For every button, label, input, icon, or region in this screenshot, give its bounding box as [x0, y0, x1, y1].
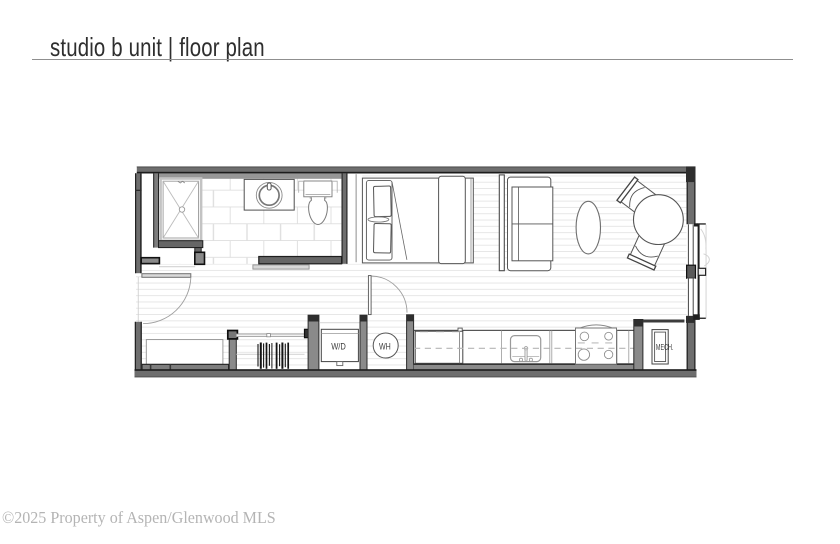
- svg-text:WH: WH: [379, 342, 391, 352]
- svg-text:MECH.: MECH.: [656, 343, 674, 352]
- svg-text:W/D: W/D: [331, 342, 346, 352]
